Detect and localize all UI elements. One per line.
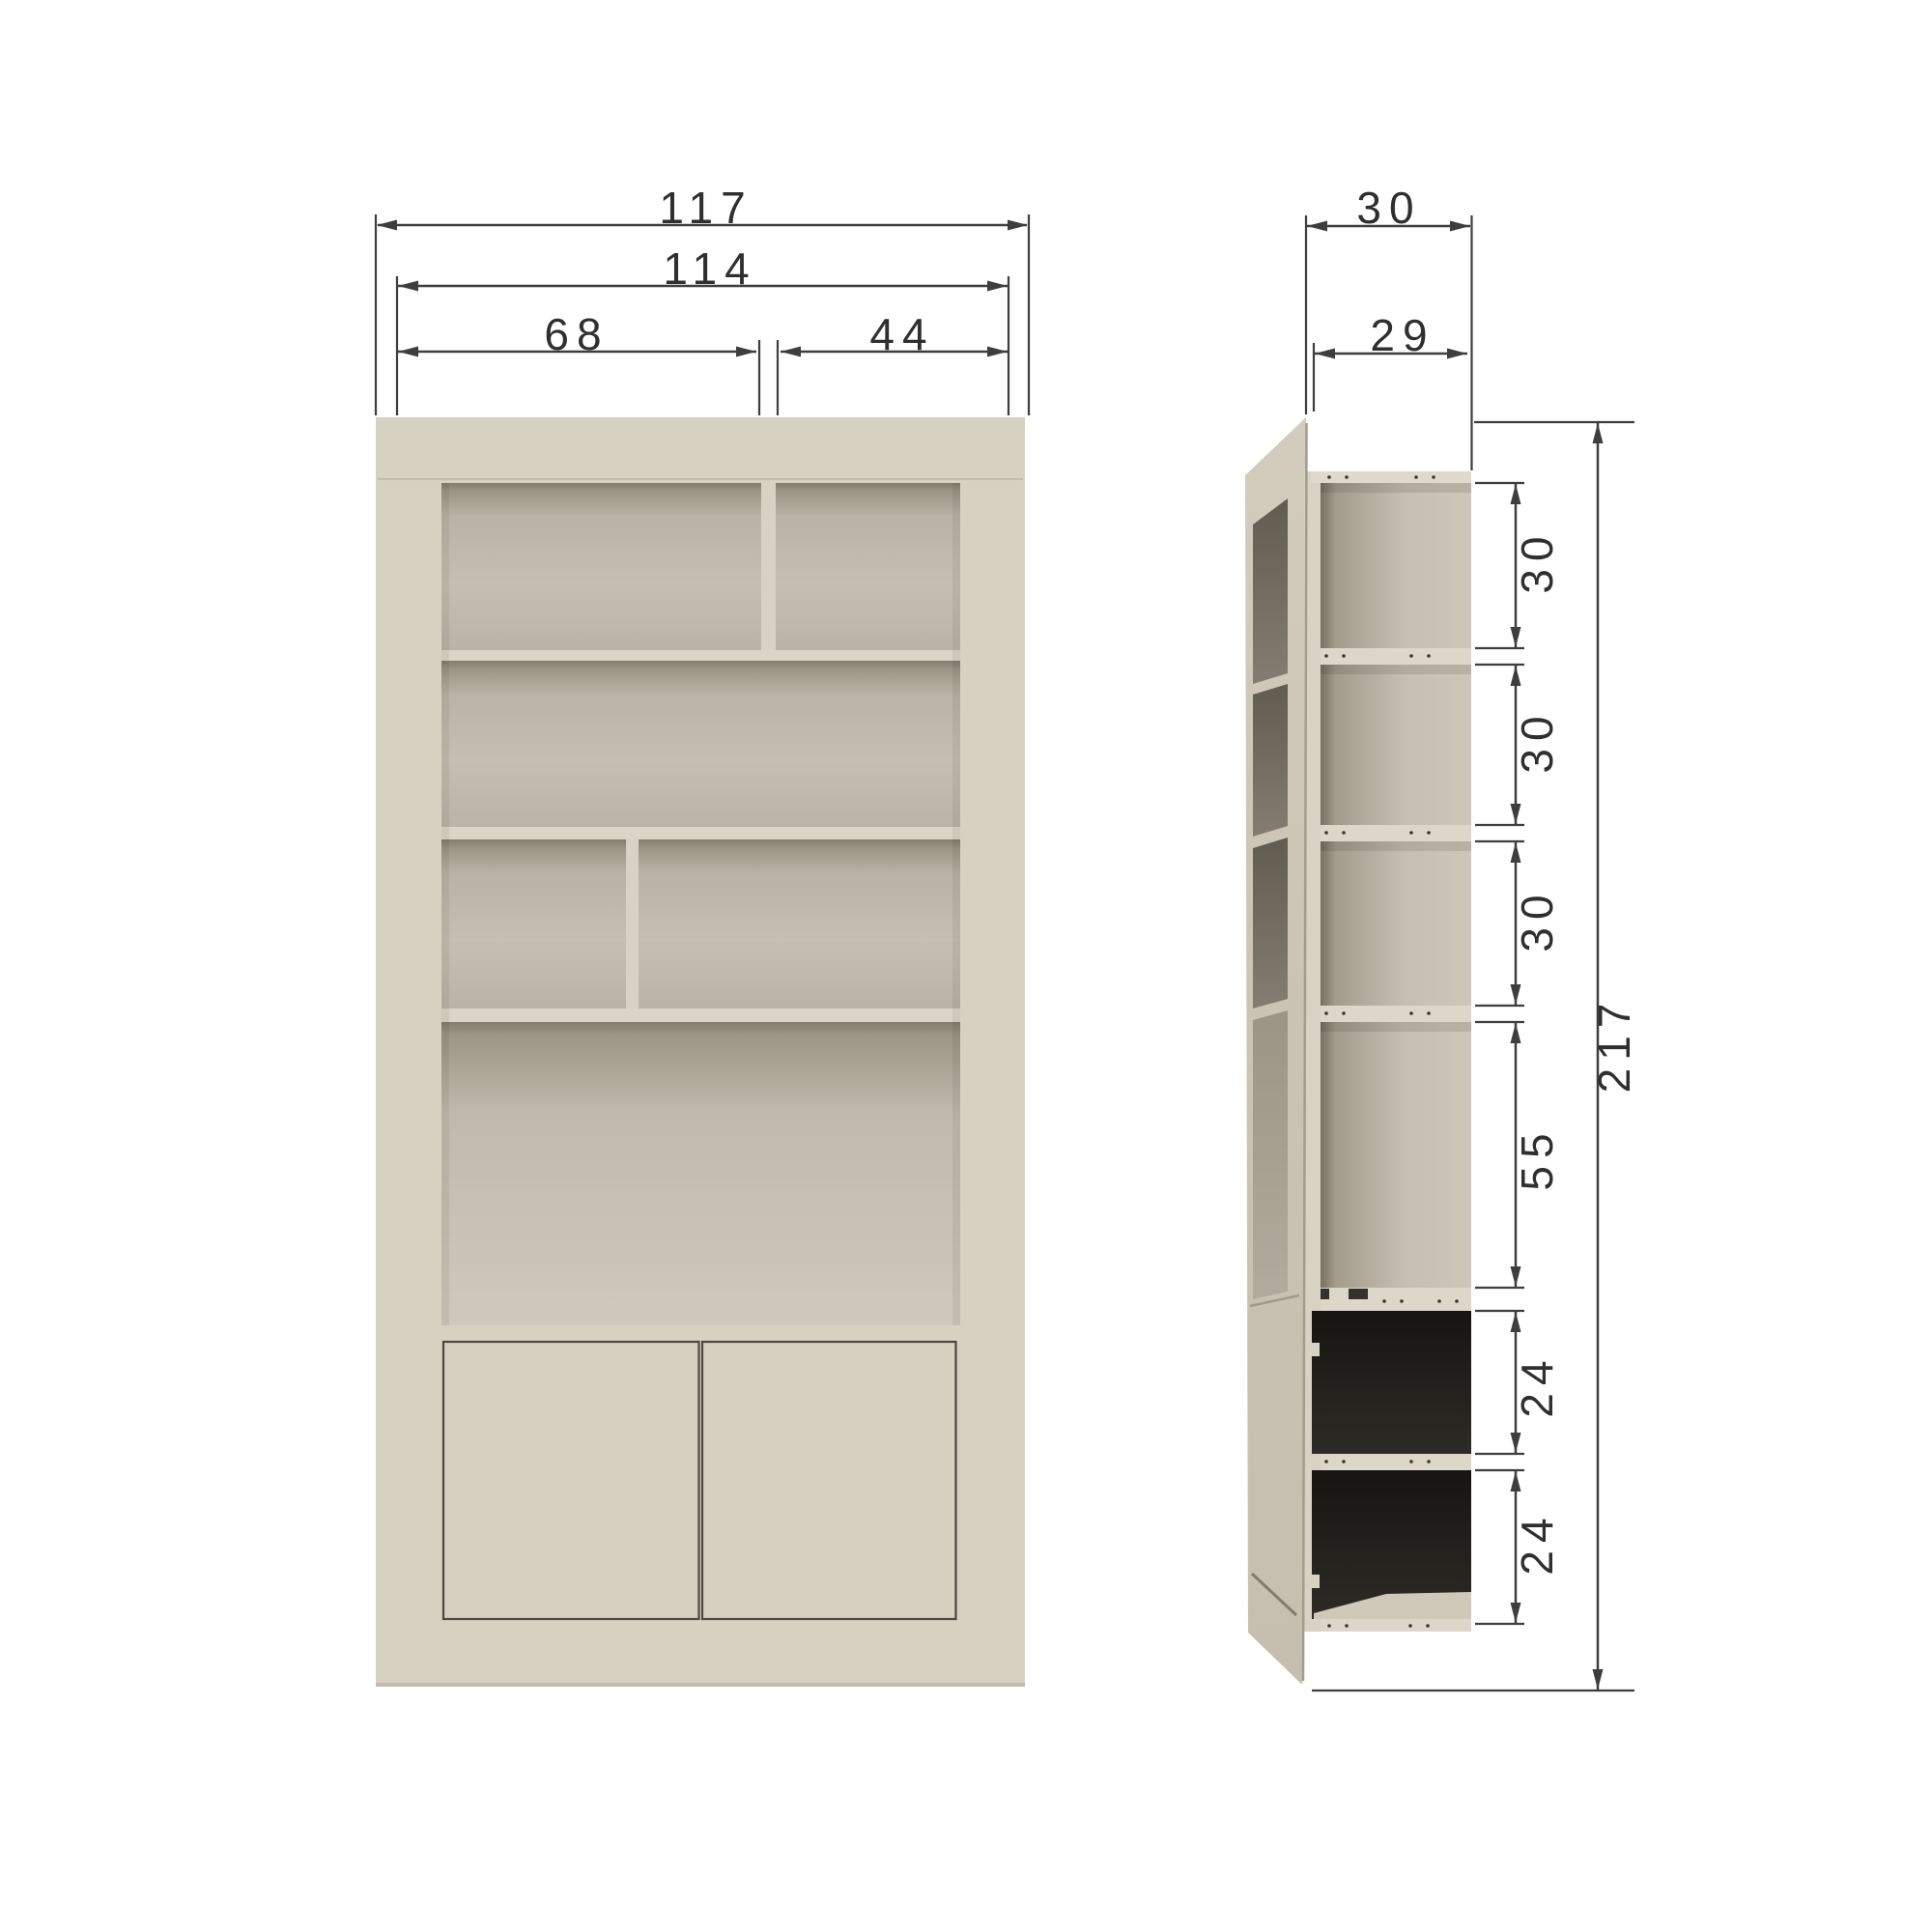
- svg-text:30: 30: [1512, 708, 1562, 773]
- svg-text:29: 29: [1370, 310, 1435, 360]
- svg-text:44: 44: [869, 309, 934, 359]
- svg-text:55: 55: [1512, 1125, 1562, 1190]
- svg-text:24: 24: [1512, 1510, 1562, 1575]
- svg-text:30: 30: [1512, 528, 1562, 593]
- svg-text:117: 117: [659, 183, 753, 233]
- svg-text:30: 30: [1356, 183, 1421, 233]
- svg-text:24: 24: [1512, 1352, 1562, 1417]
- svg-text:68: 68: [544, 309, 609, 359]
- svg-text:114: 114: [663, 243, 756, 294]
- svg-text:30: 30: [1512, 887, 1562, 952]
- svg-text:217: 217: [1589, 996, 1639, 1094]
